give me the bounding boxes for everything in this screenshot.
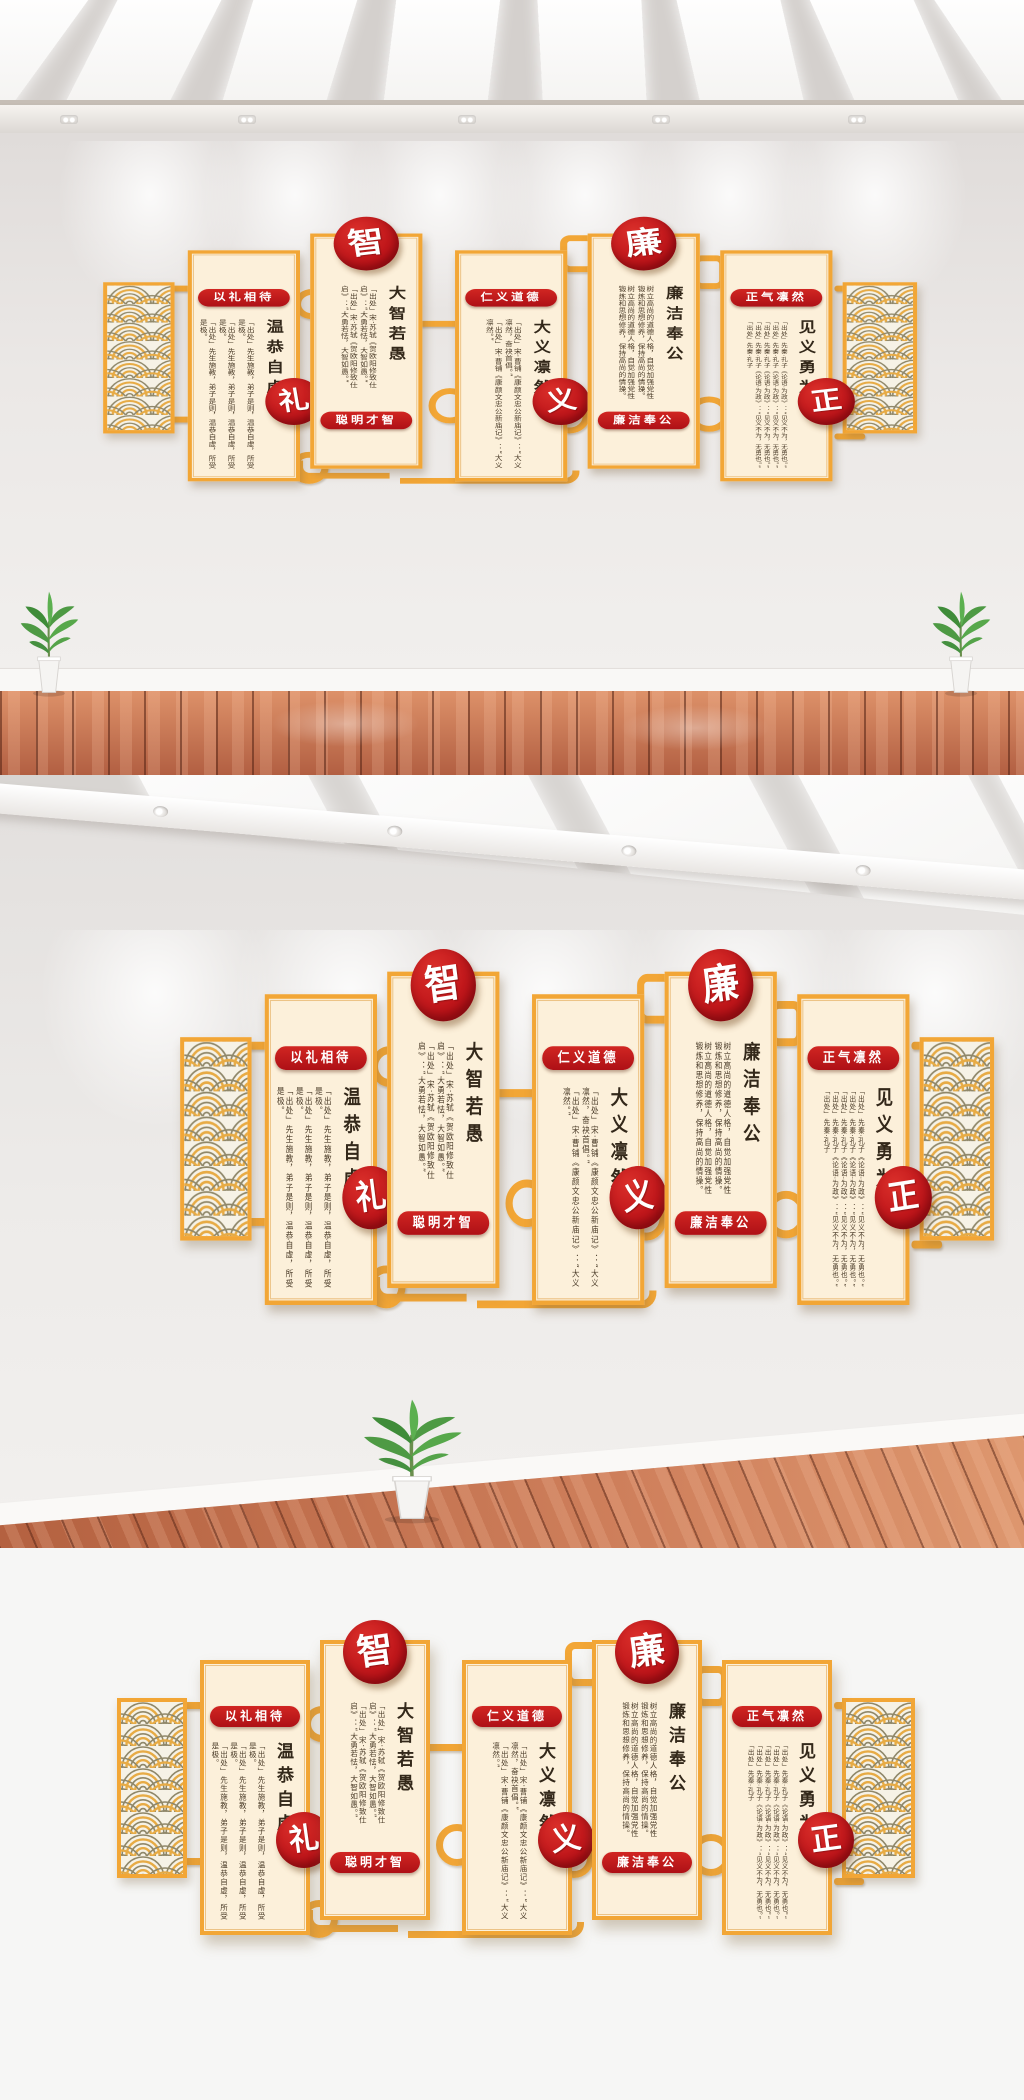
panel-lian: 廉 廉洁奉公 树立高尚的道德人格，自觉加强党性锻炼和思想修养，保持高尚的情操。 … [592,1640,702,1920]
virtue-seal-zhi: 智 [411,949,476,1021]
potted-plant-right [928,586,994,698]
panel-motto: 廉洁奉公 [737,1042,763,1207]
panel-yi: 仁义道德 大义凛然 「出处」宋·曹铺《康颜文忠公新庙记》：“大义凛然，奋袂首倡。… [455,250,567,481]
potted-plant-left [16,586,82,698]
wave-deco-panel-left [180,1037,251,1240]
virtue-seal-lian: 廉 [615,1620,679,1684]
source-passage: 「出处」先生施教，弟子是则，温恭自虚，所受是极。 [217,319,235,471]
panel-li: 以礼相待 温恭自虚 「出处」先生施教，弟子是则，温恭自虚，所受是极。 「出处」先… [200,1660,310,1935]
light-strip [219,0,361,100]
panel-zheng: 正气凛然 见义勇为 「出处」先秦·孔子《论语·为政》：“见义不为，无勇也。” 「… [722,1660,832,1935]
source-passage: 「出处」先秦·孔子《论语·为政》：“见义不为，无勇也。” [847,1087,855,1292]
source-passage: 「出处」宋·苏轼《贺欧阳修致仕启》：“大勇若怯，大智如愚。” [349,1702,366,1846]
virtue-seal-lian: 廉 [688,949,753,1021]
panel-text: 廉洁奉公 树立高尚的道德人格，自觉加强党性锻炼和思想修养，保持高尚的情操。 树立… [599,284,689,408]
floor-reflection [270,701,420,747]
source-passage: 「出处」先秦·孔子《论语·为政》：“见义不为，无勇也。” [856,1087,864,1292]
source-passage: 「出处」先秦·孔子《论语·为政》：“见义不为，无勇也。” [839,1087,847,1292]
connector-bar [834,1878,864,1885]
panel-band-pill: 聪明才智 [330,1852,420,1873]
flat-design-view: 以礼相待 温恭自虚 「出处」先生施教，弟子是则，温恭自虚，所受是极。 「出处」先… [0,1548,1024,2100]
panel-li: 以礼相待 温恭自虚 「出处」先生施教，弟子是则，温恭自虚，所受是极。 「出处」先… [188,250,300,481]
virtue-seal-zhi: 智 [334,217,399,271]
source-passage: 「出处」宋·曹铺《康颜文忠公新庙记》：“大义凛然。” [485,319,503,471]
crosshatch-deco [669,1243,773,1284]
connector-bar [834,433,865,439]
wood-floor [0,691,1024,775]
panel-text: 大智若愚 「出处」宋·苏轼《贺欧阳修致仕启》：“大勇若怯，大智如愚。” 「出处」… [321,284,411,408]
virtue-seal-yi: 义 [610,1166,667,1229]
downlight-fixture [458,115,476,124]
virtue-seal-lian: 廉 [611,217,676,271]
seigaiha-pattern [121,1702,183,1874]
panel-zheng: 正气凛然 见义勇为 「出处」先秦·孔子《论语·为政》：“见义不为，无勇也。” 「… [797,994,909,1305]
panel-zhi: 智 大智若愚 「出处」宋·苏轼《贺欧阳修致仕启》：“大勇若怯，大智如愚。” 「出… [310,234,422,469]
source-passage: 树立高尚的道德人格，自觉加强党性锻炼和思想修养，保持高尚的情操。 [694,1042,712,1205]
downlight-fixture [621,845,637,857]
source-passage: 「出处」先秦·孔子 [746,1742,753,1923]
light-strip [804,0,963,100]
source-passage: 「出处」先秦·孔子《论语·为政》：“见义不为，无勇也。” [770,319,778,471]
panel-header-pill: 仁义道德 [542,1046,634,1070]
panel-header-pill: 正气凛然 [732,1706,822,1727]
downlight-fixture [153,805,169,817]
panel-motto: 廉洁奉公 [660,286,686,409]
wave-deco-panel-left [103,282,174,433]
culture-wall: 以礼相待 温恭自虚 「出处」先生施教，弟子是则，温恭自虚，所受是极。 「出处」先… [96,210,922,487]
source-passage: 「出处」先秦·孔子《论语·为政》：“见义不为，无勇也。” [754,1742,761,1923]
source-passage: 「出处」宋·曹铺《康颜文忠公新庙记》：“大义凛然，奋袂首倡。” [581,1087,599,1292]
panel-yi: 仁义道德 大义凛然 「出处」宋·曹铺《康颜文忠公新庙记》：“大义凛然，奋袂首倡。… [462,1660,572,1935]
source-passage: 「出处」宋·苏轼《贺欧阳修致仕启》：“大勇若怯，大智如愚。” [340,286,358,407]
culture-wall: 以礼相待 温恭自虚 「出处」先生施教，弟子是则，温恭自虚，所受是极。 「出处」先… [173,940,999,1313]
panel-header-pill: 以礼相待 [198,289,290,307]
room-view-close: 以礼相待 温恭自虚 「出处」先生施教，弟子是则，温恭自虚，所受是极。 「出处」先… [0,775,1024,1548]
downlight-fixture [60,115,78,124]
source-passage: 树立高尚的道德人格，自觉加强党性锻炼和思想修养，保持高尚的情操。 [636,286,654,407]
seigaiha-pattern [184,1042,247,1236]
panel-motto: 大智若愚 [460,1042,486,1207]
virtue-seal-zhi: 智 [343,1620,407,1684]
floor-reflection [620,705,770,751]
seigaiha-pattern [924,1042,990,1236]
seigaiha-pattern [847,286,913,430]
room-view-top: 以礼相待 温恭自虚 「出处」先生施教，弟子是则，温恭自虚，所受是极。 「出处」先… [0,0,1024,775]
downlight-fixture [652,115,670,124]
panel-band-pill: 聪明才智 [397,1211,489,1235]
source-passage: 「出处」先生施教，弟子是则，温恭自虚，所受是极。 [248,1742,265,1923]
downlight-fixture [855,864,871,876]
panel-zhi: 智 大智若愚 「出处」宋·苏轼《贺欧阳修致仕启》：“大勇若怯，大智如愚。” 「出… [320,1640,430,1920]
potted-plant-graphic [928,586,994,698]
downlight-fixture [238,115,256,124]
panel-header-pill: 以礼相待 [275,1046,367,1070]
source-passage: 「出处」先秦·孔子《论语·为政》：“见义不为，无勇也。” [762,319,770,471]
ceiling-light-strips [0,0,1024,100]
source-passage: 「出处」先生施教，弟子是则，温恭自虚，所受是极。 [276,1087,293,1292]
source-passage: 「出处」先秦·孔子《论语·为政》：“见义不为，无勇也。” [771,1742,778,1923]
source-passage: 树立高尚的道德人格，自觉加强党性锻炼和思想修养，保持高尚的情操。 [640,1702,657,1846]
crosshatch-deco [314,435,418,465]
seigaiha-pattern [846,1702,911,1874]
light-strip [674,0,807,100]
panel-band-pill: 廉洁奉公 [598,412,690,430]
panel-band-pill: 廉洁奉公 [602,1852,692,1873]
light-strip [382,0,501,100]
source-passage: 「出处」先生施教，弟子是则，温恭自虚，所受是极。 [237,319,255,471]
wave-deco-panel-left [117,1698,187,1878]
panel-header-pill: 以礼相待 [210,1706,300,1727]
panel-yi: 仁义道德 大义凛然 「出处」宋·曹铺《康颜文忠公新庙记》：“大义凛然，奋袂首倡。… [532,994,644,1305]
source-passage: 「出处」先秦·孔子《论语·为政》：“见义不为，无勇也。” [830,1087,838,1292]
source-passage: 「出处」宋·曹铺《康颜文忠公新庙记》：“大义凛然。” [562,1087,580,1292]
potted-plant-graphic [356,1393,468,1525]
panel-band-pill: 廉洁奉公 [675,1211,767,1235]
panel-text: 廉洁奉公 树立高尚的道德人格，自觉加强党性锻炼和思想修养，保持高尚的情操。 树立… [676,1039,766,1206]
virtue-seal-yi: 义 [533,378,590,425]
source-passage: 树立高尚的道德人格，自觉加强党性锻炼和思想修养，保持高尚的情操。 [713,1042,731,1205]
source-passage: 「出处」先秦·孔子 [821,1087,829,1292]
source-passage: 「出处」先生施教，弟子是则，温恭自虚，所受是极。 [199,319,216,471]
light-strip [60,0,227,100]
source-passage: 「出处」先生施教，弟子是则，温恭自虚，所受是极。 [314,1087,332,1292]
panel-motto: 大智若愚 [383,286,409,409]
culture-wall: 以礼相待 温恭自虚 「出处」先生施教，弟子是则，温恭自虚，所受是极。 「出处」先… [110,1612,920,1942]
source-passage: 「出处」先秦·孔子《论语·为政》：“见义不为，无勇也。” [779,319,787,471]
virtue-seal-yi: 义 [538,1812,594,1868]
design-preview-sheet: 以礼相待 温恭自虚 「出处」先生施教，弟子是则，温恭自虚，所受是极。 「出处」先… [0,0,1024,2100]
source-passage: 「出处」先秦·孔子《论语·为政》：“见义不为，无勇也。” [763,1742,770,1923]
panel-text: 大智若愚 「出处」宋·苏轼《贺欧阳修致仕启》：“大勇若怯，大智如愚。” 「出处」… [398,1039,488,1206]
crosshatch-deco [592,435,696,465]
panel-band-pill: 聪明才智 [320,412,412,430]
source-passage: 「出处」宋·曹铺《康颜文忠公新庙记》：“大义凛然。” [491,1742,508,1923]
panel-text: 廉洁奉公 树立高尚的道德人格，自觉加强党性锻炼和思想修养，保持高尚的情操。 树立… [603,1700,691,1848]
crosshatch-deco [324,1880,426,1916]
ceiling-fascia [0,105,1024,133]
panel-lian: 廉 廉洁奉公 树立高尚的道德人格，自觉加强党性锻炼和思想修养，保持高尚的情操。 … [665,972,777,1288]
source-passage: 「出处」先生施教，弟子是则，温恭自虚，所受是极。 [229,1742,246,1923]
panel-lian: 廉 廉洁奉公 树立高尚的道德人格，自觉加强党性锻炼和思想修养，保持高尚的情操。 … [588,234,700,469]
light-strip [537,0,647,100]
downlight-fixture [848,115,866,124]
crosshatch-deco [391,1243,495,1284]
panel-zheng: 正气凛然 见义勇为 「出处」先秦·孔子《论语·为政》：“见义不为，无勇也。” 「… [720,250,832,481]
virtue-seal-zheng: 正 [875,1166,932,1229]
panel-text: 大智若愚 「出处」宋·苏轼《贺欧阳修致仕启》：“大勇若怯，大智如愚。” 「出处」… [331,1700,419,1848]
connector-bar [911,1241,942,1249]
panel-header-pill: 仁义道德 [465,289,557,307]
seigaiha-pattern [107,286,170,430]
source-passage: 「出处」宋·苏轼《贺欧阳修致仕启》：“大勇若怯，大智如愚。” [359,286,377,407]
baseboard [0,668,1024,691]
source-passage: 「出处」宋·苏轼《贺欧阳修致仕启》：“大勇若怯，大智如愚。” [368,1702,385,1846]
panel-motto: 廉洁奉公 [663,1702,688,1848]
source-passage: 「出处」先生施教，弟子是则，温恭自虚，所受是极。 [211,1742,228,1923]
source-passage: 「出处」先秦·孔子《论语·为政》：“见义不为，无勇也。” [753,319,761,471]
virtue-seal-zheng: 正 [798,1812,854,1868]
source-passage: 「出处」宋·曹铺《康颜文忠公新庙记》：“大义凛然，奋袂首倡。” [504,319,522,471]
source-passage: 「出处」宋·曹铺《康颜文忠公新庙记》：“大义凛然，奋袂首倡。” [510,1742,527,1923]
source-passage: 「出处」宋·苏轼《贺欧阳修致仕启》：“大勇若怯，大智如愚。” [436,1042,454,1205]
potted-plant-graphic [16,586,82,698]
downlight-fixture [387,825,403,837]
source-passage: 「出处」先秦·孔子 [744,319,752,471]
virtue-seal-zheng: 正 [798,378,855,425]
crosshatch-deco [596,1880,698,1916]
source-passage: 树立高尚的道德人格，自觉加强党性锻炼和思想修养，保持高尚的情操。 [621,1702,638,1846]
source-passage: 树立高尚的道德人格，自觉加强党性锻炼和思想修养，保持高尚的情操。 [617,286,635,407]
panel-header-pill: 仁义道德 [472,1706,562,1727]
source-passage: 「出处」宋·苏轼《贺欧阳修致仕启》：“大勇若怯，大智如愚。” [417,1042,435,1205]
panel-zhi: 智 大智若愚 「出处」宋·苏轼《贺欧阳修致仕启》：“大勇若怯，大智如愚。” 「出… [387,972,499,1288]
potted-plant [356,1393,468,1525]
panel-motto: 大智若愚 [391,1702,416,1848]
panel-header-pill: 正气凛然 [807,1046,899,1070]
panel-header-pill: 正气凛然 [730,289,822,307]
panel-li: 以礼相待 温恭自虚 「出处」先生施教，弟子是则，温恭自虚，所受是极。 「出处」先… [265,994,377,1305]
source-passage: 「出处」先秦·孔子《论语·为政》：“见义不为，无勇也。” [780,1742,787,1923]
source-passage: 「出处」先生施教，弟子是则，温恭自虚，所受是极。 [294,1087,312,1292]
